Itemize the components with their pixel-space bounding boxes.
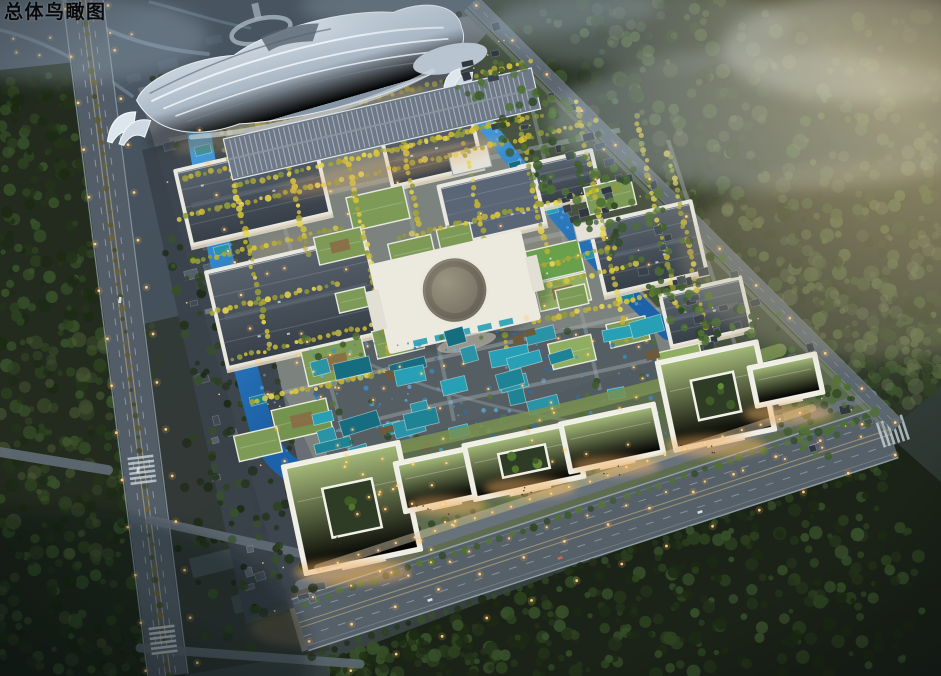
masterplan-birdseye-rendering bbox=[0, 0, 941, 676]
page-title: 总体鸟瞰图 bbox=[4, 2, 107, 25]
aerial-rendering-canvas: 总体鸟瞰图 bbox=[0, 0, 941, 676]
vignette bbox=[0, 0, 941, 676]
